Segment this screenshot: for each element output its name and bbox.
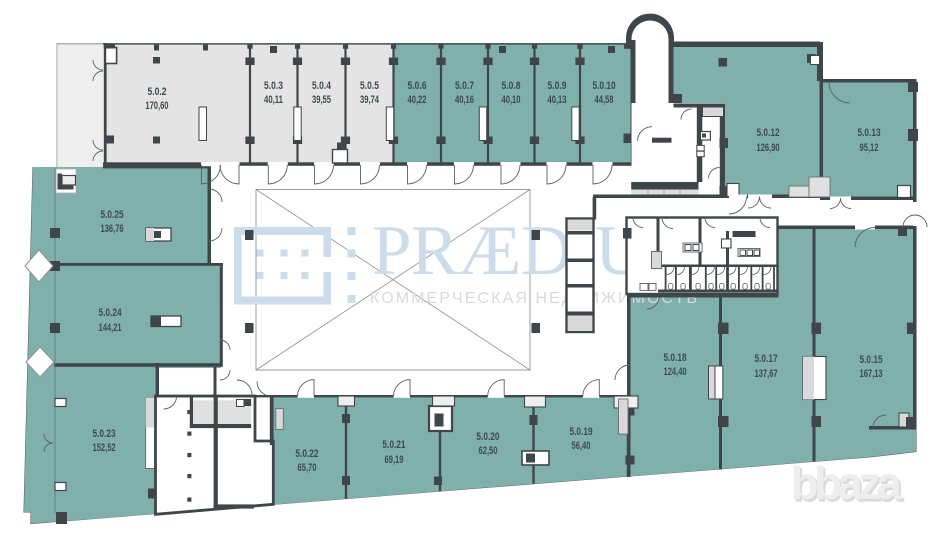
svg-text:40,13: 40,13 [548, 94, 567, 106]
svg-text:5.0.12: 5.0.12 [757, 127, 780, 139]
svg-text:39,55: 39,55 [312, 94, 331, 106]
svg-text:167,13: 167,13 [860, 368, 883, 380]
svg-text:5.0.17: 5.0.17 [755, 353, 778, 365]
svg-text:170,60: 170,60 [145, 100, 168, 112]
svg-text:5.0.10: 5.0.10 [593, 80, 616, 92]
svg-text:5.0.5: 5.0.5 [360, 80, 379, 92]
svg-text:126,90: 126,90 [757, 142, 780, 154]
svg-text:40,11: 40,11 [264, 94, 283, 106]
svg-text:44,58: 44,58 [595, 94, 614, 106]
svg-text:136,76: 136,76 [101, 223, 124, 235]
svg-text:5.0.3: 5.0.3 [264, 80, 283, 92]
svg-text:40,10: 40,10 [502, 94, 521, 106]
svg-text:40,16: 40,16 [455, 94, 474, 106]
svg-text:5.0.24: 5.0.24 [99, 307, 123, 319]
svg-text:5.0.19: 5.0.19 [570, 426, 593, 438]
svg-text:5.0.23: 5.0.23 [93, 428, 116, 440]
svg-text:5.0.6: 5.0.6 [408, 80, 427, 92]
svg-text:69,19: 69,19 [385, 454, 404, 466]
svg-text:5.0.4: 5.0.4 [312, 80, 332, 92]
svg-text:5.0.18: 5.0.18 [664, 352, 687, 364]
svg-text:5.0.9: 5.0.9 [548, 80, 567, 92]
svg-text:5.0.21: 5.0.21 [382, 439, 405, 451]
svg-text:39,74: 39,74 [360, 94, 380, 106]
svg-text:124,40: 124,40 [664, 366, 687, 378]
svg-text:5.0.20: 5.0.20 [476, 431, 499, 443]
svg-text:137,67: 137,67 [755, 368, 778, 380]
svg-text:95,12: 95,12 [860, 142, 879, 154]
svg-text:5.0.13: 5.0.13 [858, 127, 881, 139]
svg-text:144,21: 144,21 [99, 322, 122, 334]
svg-text:5.0.25: 5.0.25 [101, 209, 124, 221]
svg-text:152,52: 152,52 [93, 442, 116, 454]
svg-text:40,22: 40,22 [408, 94, 427, 106]
svg-text:5.0.2: 5.0.2 [148, 86, 167, 98]
svg-text:5.0.22: 5.0.22 [295, 448, 318, 460]
svg-text:5.0.8: 5.0.8 [502, 80, 521, 92]
svg-text:5.0.7: 5.0.7 [455, 80, 474, 92]
svg-text:5.0.15: 5.0.15 [860, 354, 883, 366]
svg-text:62,50: 62,50 [479, 445, 498, 457]
svg-text:65,70: 65,70 [298, 462, 317, 474]
svg-text:56,40: 56,40 [572, 440, 591, 452]
svg-text:bbaza: bbaza [791, 457, 903, 509]
